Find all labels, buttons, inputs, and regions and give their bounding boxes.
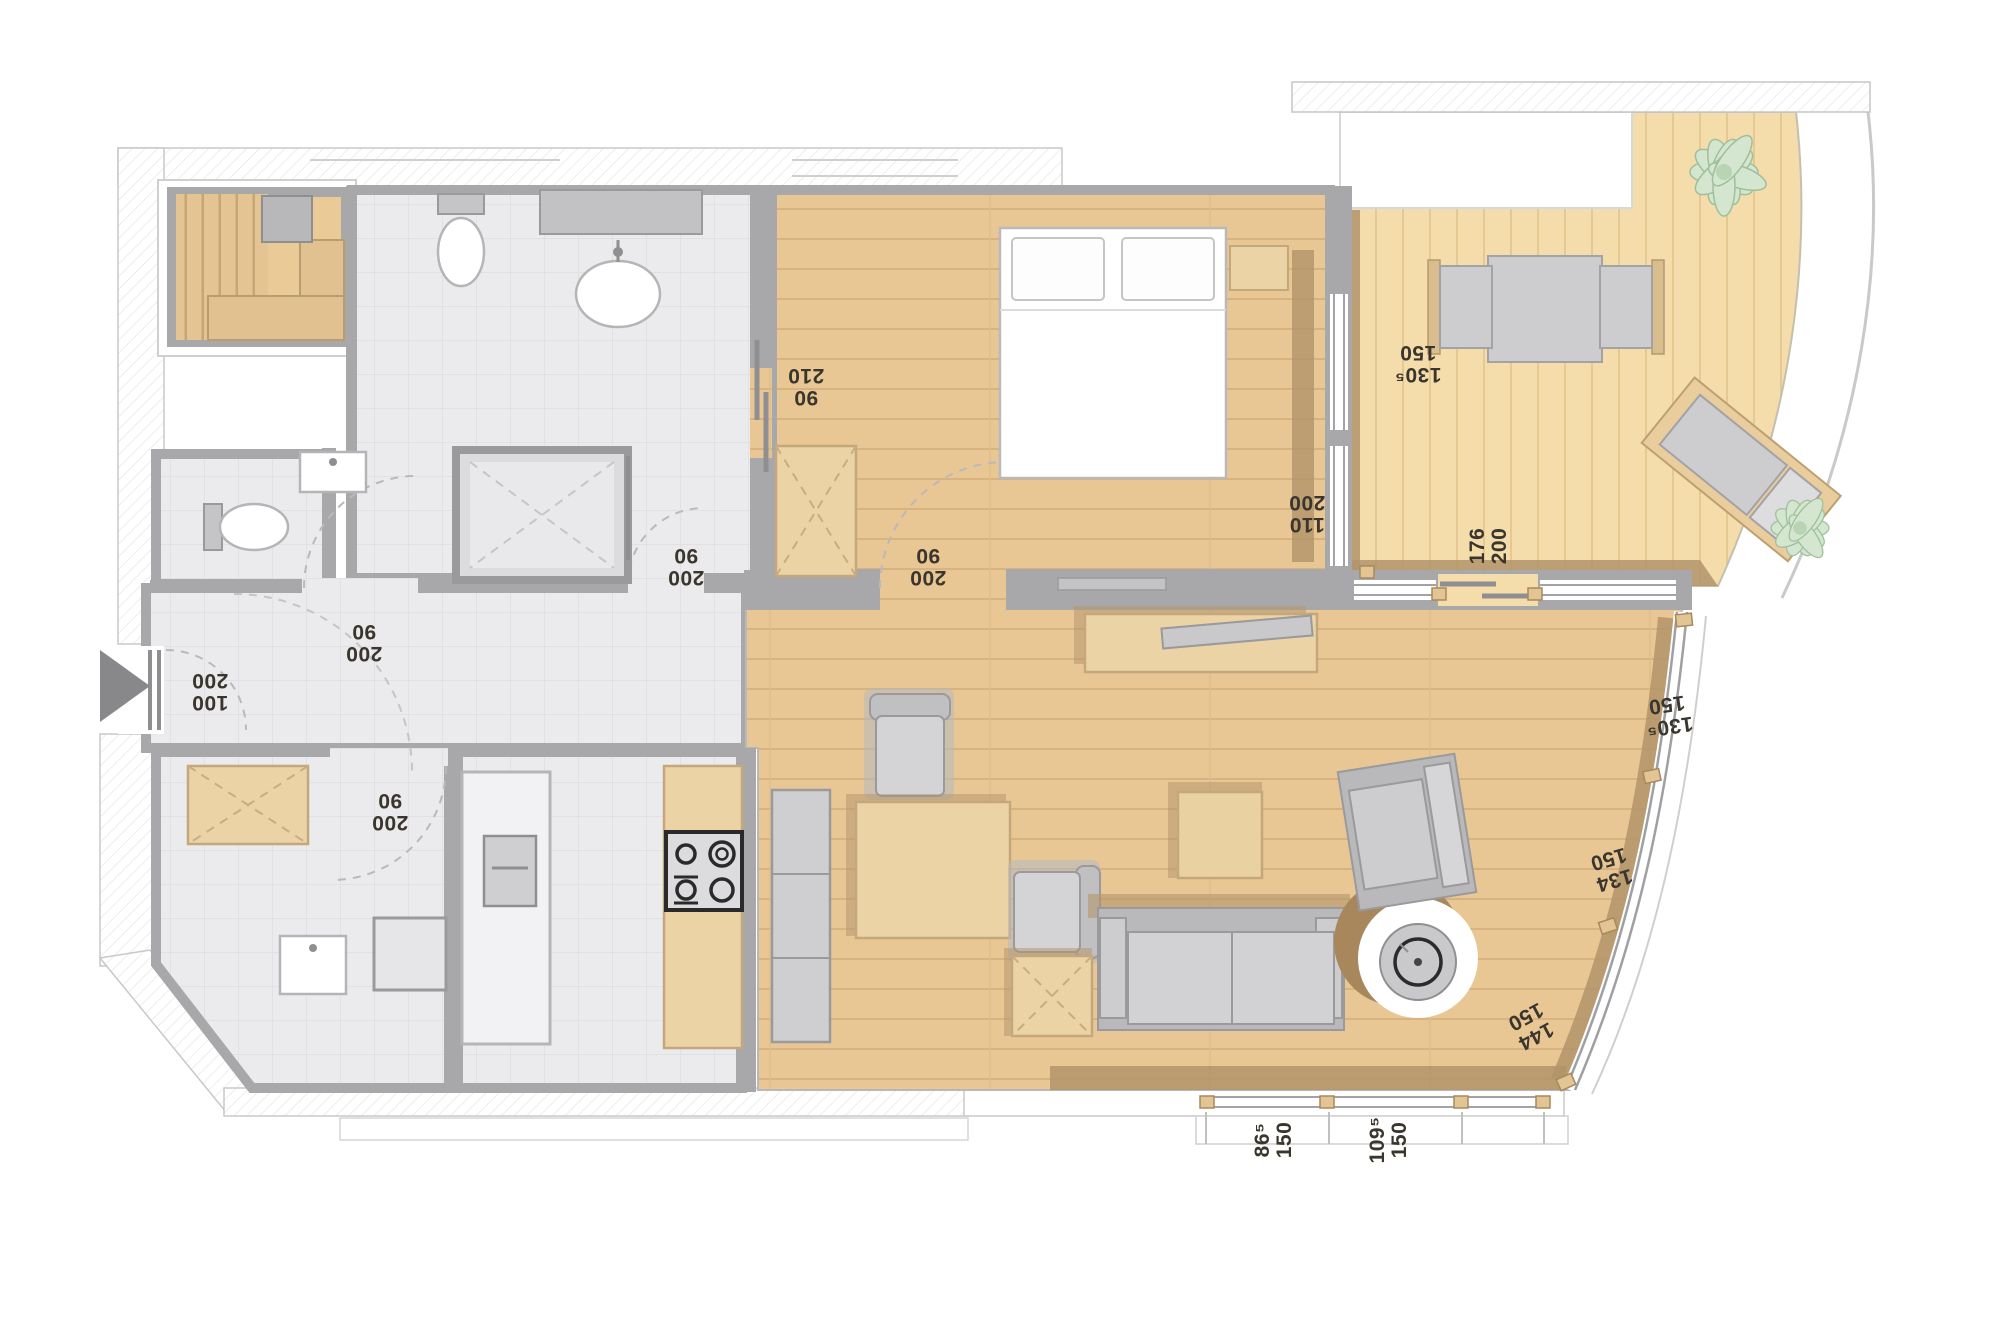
patio-chair-left [1428, 260, 1492, 354]
washing-machine [374, 918, 446, 990]
dimension-label-terrace-upper-window: 150 130⁵ [1395, 341, 1442, 386]
svg-text:150: 150 [1388, 1122, 1411, 1159]
terrace [1292, 82, 1874, 598]
dimension-label-entrance-door: 200 100 [192, 669, 229, 714]
tap-icon [329, 458, 337, 466]
svg-text:109⁵: 109⁵ [1366, 1117, 1389, 1164]
svg-text:210: 210 [788, 364, 825, 387]
svg-text:110: 110 [1289, 513, 1324, 536]
dimension-label-terrace-door: 176 200 [1466, 528, 1511, 565]
patio-chair-right [1600, 260, 1664, 354]
svg-text:100: 100 [192, 691, 229, 714]
bookshelf [772, 790, 830, 1042]
pillow [1012, 238, 1104, 300]
kitchen-counter [462, 772, 550, 1044]
cooktop-icon [666, 832, 742, 910]
svg-text:200: 200 [1289, 491, 1326, 514]
svg-text:200: 200 [192, 669, 229, 692]
svg-text:200: 200 [910, 566, 947, 589]
svg-text:90: 90 [794, 386, 818, 409]
terrace-void [1340, 112, 1632, 208]
patio-table [1488, 256, 1602, 362]
bedside-table [1230, 246, 1288, 290]
svg-text:200: 200 [372, 811, 409, 834]
wall-shelf [1058, 578, 1166, 590]
svg-text:200: 200 [346, 642, 383, 665]
floor-plan-page: 210 90 150 130⁵ 200 110 176 200 90 200 9… [0, 0, 2000, 1333]
svg-text:176: 176 [1466, 528, 1489, 565]
coffee-table [1178, 792, 1262, 878]
washbasin-icon [576, 261, 660, 327]
svg-text:90: 90 [674, 544, 698, 567]
cabinet [1338, 754, 1476, 911]
svg-text:90: 90 [916, 544, 940, 567]
dimension-label-bedroom-east-window: 200 110 [1289, 491, 1326, 536]
svg-text:200: 200 [668, 566, 705, 589]
dining-table [856, 802, 1010, 938]
dimension-label-living-window-1: 150 130⁵ [1642, 690, 1695, 741]
sofa [1088, 894, 1350, 1030]
double-bed [1000, 228, 1226, 478]
sauna-stove [262, 196, 312, 242]
pillow [1122, 238, 1214, 300]
svg-text:130⁵: 130⁵ [1395, 363, 1442, 386]
dimension-label-south-window-2: 109⁵ 150 [1366, 1117, 1411, 1164]
terrace-top-wall [1292, 82, 1870, 112]
hall-floor [146, 588, 746, 748]
svg-text:90: 90 [352, 620, 376, 643]
svg-text:150: 150 [1273, 1122, 1296, 1159]
toilet-cistern [438, 194, 484, 214]
dimension-label-south-window-1: 86⁵ 150 [1251, 1122, 1296, 1159]
armchair [864, 688, 954, 800]
oven [484, 836, 536, 906]
svg-text:86⁵: 86⁵ [1251, 1123, 1274, 1158]
svg-text:150: 150 [1400, 341, 1437, 364]
sauna-bench [208, 296, 344, 340]
tap-icon [309, 944, 317, 952]
wardrobe-cabinet [776, 446, 856, 576]
vanity-counter [540, 190, 702, 234]
shower [456, 450, 628, 580]
floor-plan-svg: 210 90 150 130⁵ 200 110 176 200 90 200 9… [0, 0, 2000, 1333]
svg-text:90: 90 [378, 789, 402, 812]
toilet-icon [438, 218, 484, 286]
storage-box [1004, 948, 1092, 1036]
svg-text:200: 200 [1488, 528, 1511, 565]
toilet-icon [220, 504, 288, 550]
